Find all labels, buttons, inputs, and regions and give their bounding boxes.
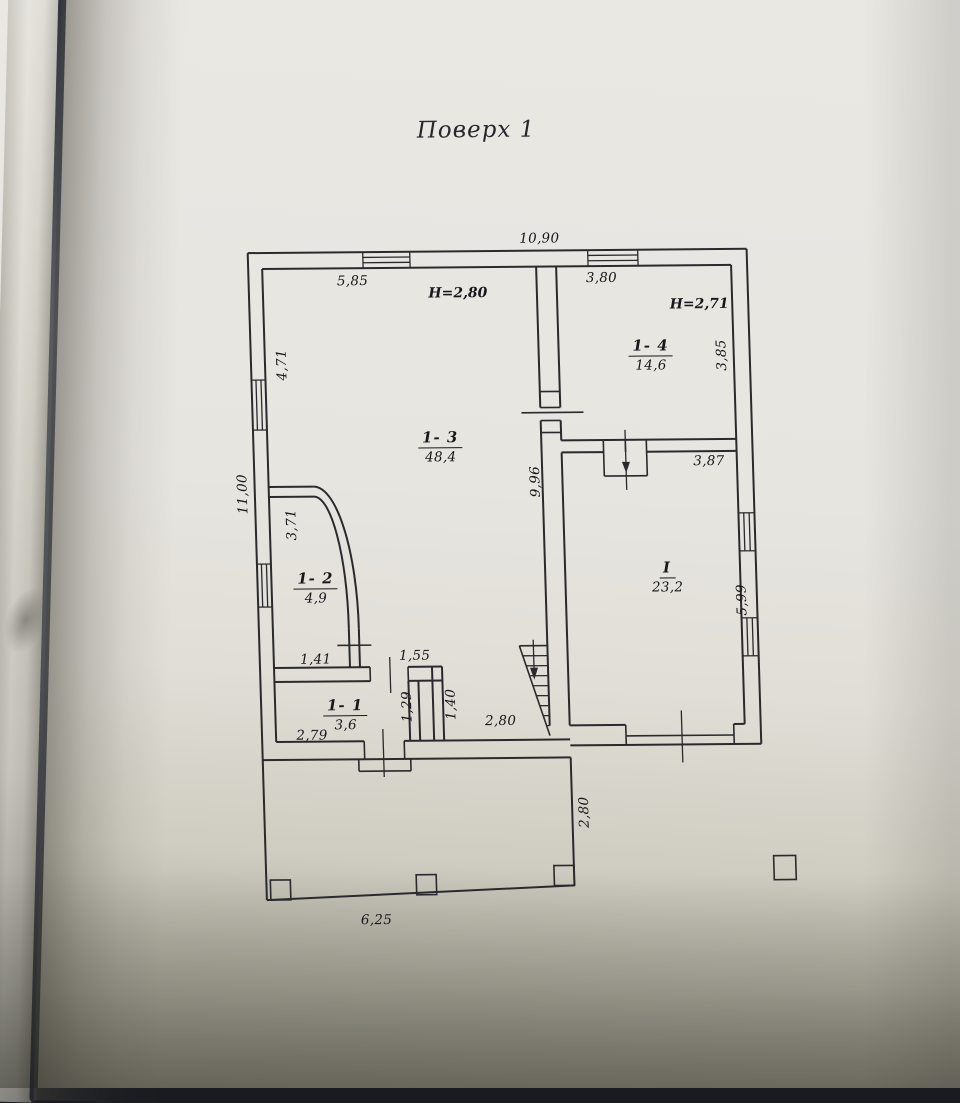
bottom-shadow — [0, 0, 960, 1088]
